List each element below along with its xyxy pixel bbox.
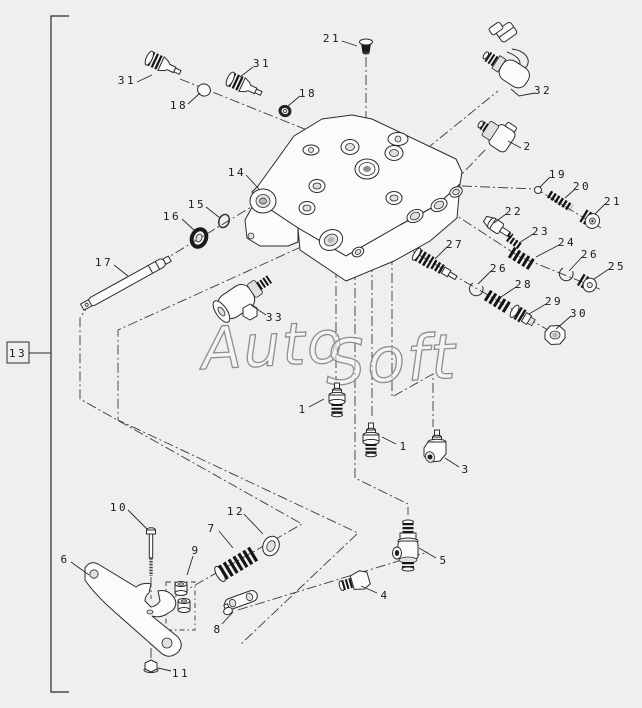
part-28-spring <box>487 295 508 308</box>
part-18-seal-a <box>196 82 212 98</box>
part-31-valve-a <box>143 50 183 79</box>
part-21-socket-plug <box>579 209 602 231</box>
callout-18: 18 <box>170 99 188 112</box>
part-26-snap-ring-b <box>468 282 484 297</box>
callout-27: 27 <box>446 238 464 251</box>
part-31-valve-b <box>224 71 264 100</box>
assembly-bracket: 13 <box>7 16 69 692</box>
callout-leader-17 <box>114 265 128 276</box>
callout-25: 25 <box>608 260 626 273</box>
callout-leader-31 <box>240 67 253 77</box>
callout-14: 14 <box>228 166 246 179</box>
part-5-tee-fitting <box>393 520 419 571</box>
callout-1: 1 <box>298 403 307 416</box>
part-1-fitting-b <box>363 423 379 457</box>
callout-24: 24 <box>558 236 576 249</box>
callout-26: 26 <box>581 248 599 261</box>
part-27-spool <box>411 247 460 284</box>
callout-26: 26 <box>490 262 508 275</box>
callout-leader-15 <box>206 207 220 218</box>
part-25-plug <box>577 273 599 294</box>
callout-22: 22 <box>505 205 523 218</box>
part-19-ring <box>535 187 542 194</box>
callout-2: 2 <box>523 140 532 153</box>
diagram-canvas: AutoSoft <box>0 0 642 708</box>
part-29-piston <box>508 304 537 329</box>
callout-leader-16 <box>182 219 195 231</box>
part-16-seal-ring <box>189 227 209 249</box>
part-2-sensor <box>472 109 519 154</box>
exploded-parts-diagram: AutoSoft <box>0 0 642 708</box>
callout-leader-30 <box>556 316 571 329</box>
callout-leader-5 <box>419 548 436 558</box>
callout-21: 21 <box>604 195 622 208</box>
callout-8: 8 <box>213 623 222 636</box>
part-24-spring <box>511 252 532 265</box>
callout-leader-32 <box>511 89 535 96</box>
callout-leader-1 <box>382 437 396 444</box>
callout-5: 5 <box>439 554 448 567</box>
callout-leader-25 <box>594 269 609 279</box>
part-10-bolt <box>147 528 156 576</box>
callout-leader-31 <box>137 75 152 82</box>
part-26-snap-ring-a <box>558 267 574 282</box>
part-4-plug <box>337 569 371 596</box>
callout-leader-12 <box>244 514 263 534</box>
part-11-nut <box>144 660 158 673</box>
part-8-link <box>221 589 258 616</box>
part-7-spring <box>213 553 255 583</box>
bracket-line <box>51 16 69 692</box>
callout-12: 12 <box>227 505 245 518</box>
callout-10: 10 <box>110 501 128 514</box>
callout-30: 30 <box>570 307 588 320</box>
callout-leader-11 <box>158 668 171 671</box>
callout-leader-21 <box>342 41 357 46</box>
callout-9: 9 <box>191 544 200 557</box>
part-22-valve <box>482 214 516 242</box>
callout-4: 4 <box>380 589 389 602</box>
callout-32: 32 <box>534 84 552 97</box>
callout-20: 20 <box>573 180 591 193</box>
part-32-solenoid <box>478 16 533 91</box>
callout-1: 1 <box>399 440 408 453</box>
callout-7: 7 <box>207 522 216 535</box>
part-3-elbow-fitting <box>424 430 446 464</box>
part-6-lever <box>85 563 181 657</box>
callout-18: 18 <box>299 87 317 100</box>
callout-leader-18 <box>188 93 200 104</box>
callout-29: 29 <box>545 295 563 308</box>
callout-leader-1 <box>309 399 324 407</box>
callout-leader-29 <box>529 304 546 314</box>
callout-21: 21 <box>323 32 341 45</box>
part-18-seal-b <box>279 105 292 117</box>
callout-33: 33 <box>266 311 284 324</box>
callout-13: 13 <box>9 347 27 360</box>
callout-17: 17 <box>95 256 113 269</box>
callout-leader-3 <box>445 458 459 467</box>
callout-31: 31 <box>118 74 136 87</box>
callout-leader-28 <box>501 287 516 297</box>
part-9-bushings <box>175 582 190 613</box>
callout-16: 16 <box>163 210 181 223</box>
callout-leader-7 <box>219 531 233 548</box>
callout-3: 3 <box>461 463 470 476</box>
callout-6: 6 <box>60 553 69 566</box>
part-17-shaft <box>80 255 172 311</box>
callout-15: 15 <box>188 198 206 211</box>
callout-31: 31 <box>253 57 271 70</box>
callout-leader-14 <box>246 175 259 189</box>
callout-23: 23 <box>532 225 550 238</box>
callout-28: 28 <box>515 278 533 291</box>
callout-11: 11 <box>172 667 190 680</box>
part-21-plug-top <box>360 39 373 55</box>
callout-leader-10 <box>128 510 147 529</box>
callout-leader-24 <box>536 245 559 257</box>
part-30-nut <box>545 326 565 345</box>
callout-leader-9 <box>187 556 193 575</box>
part-14-valve-body <box>245 115 464 281</box>
callout-19: 19 <box>549 168 567 181</box>
watermark-text-2: Soft <box>324 320 460 400</box>
